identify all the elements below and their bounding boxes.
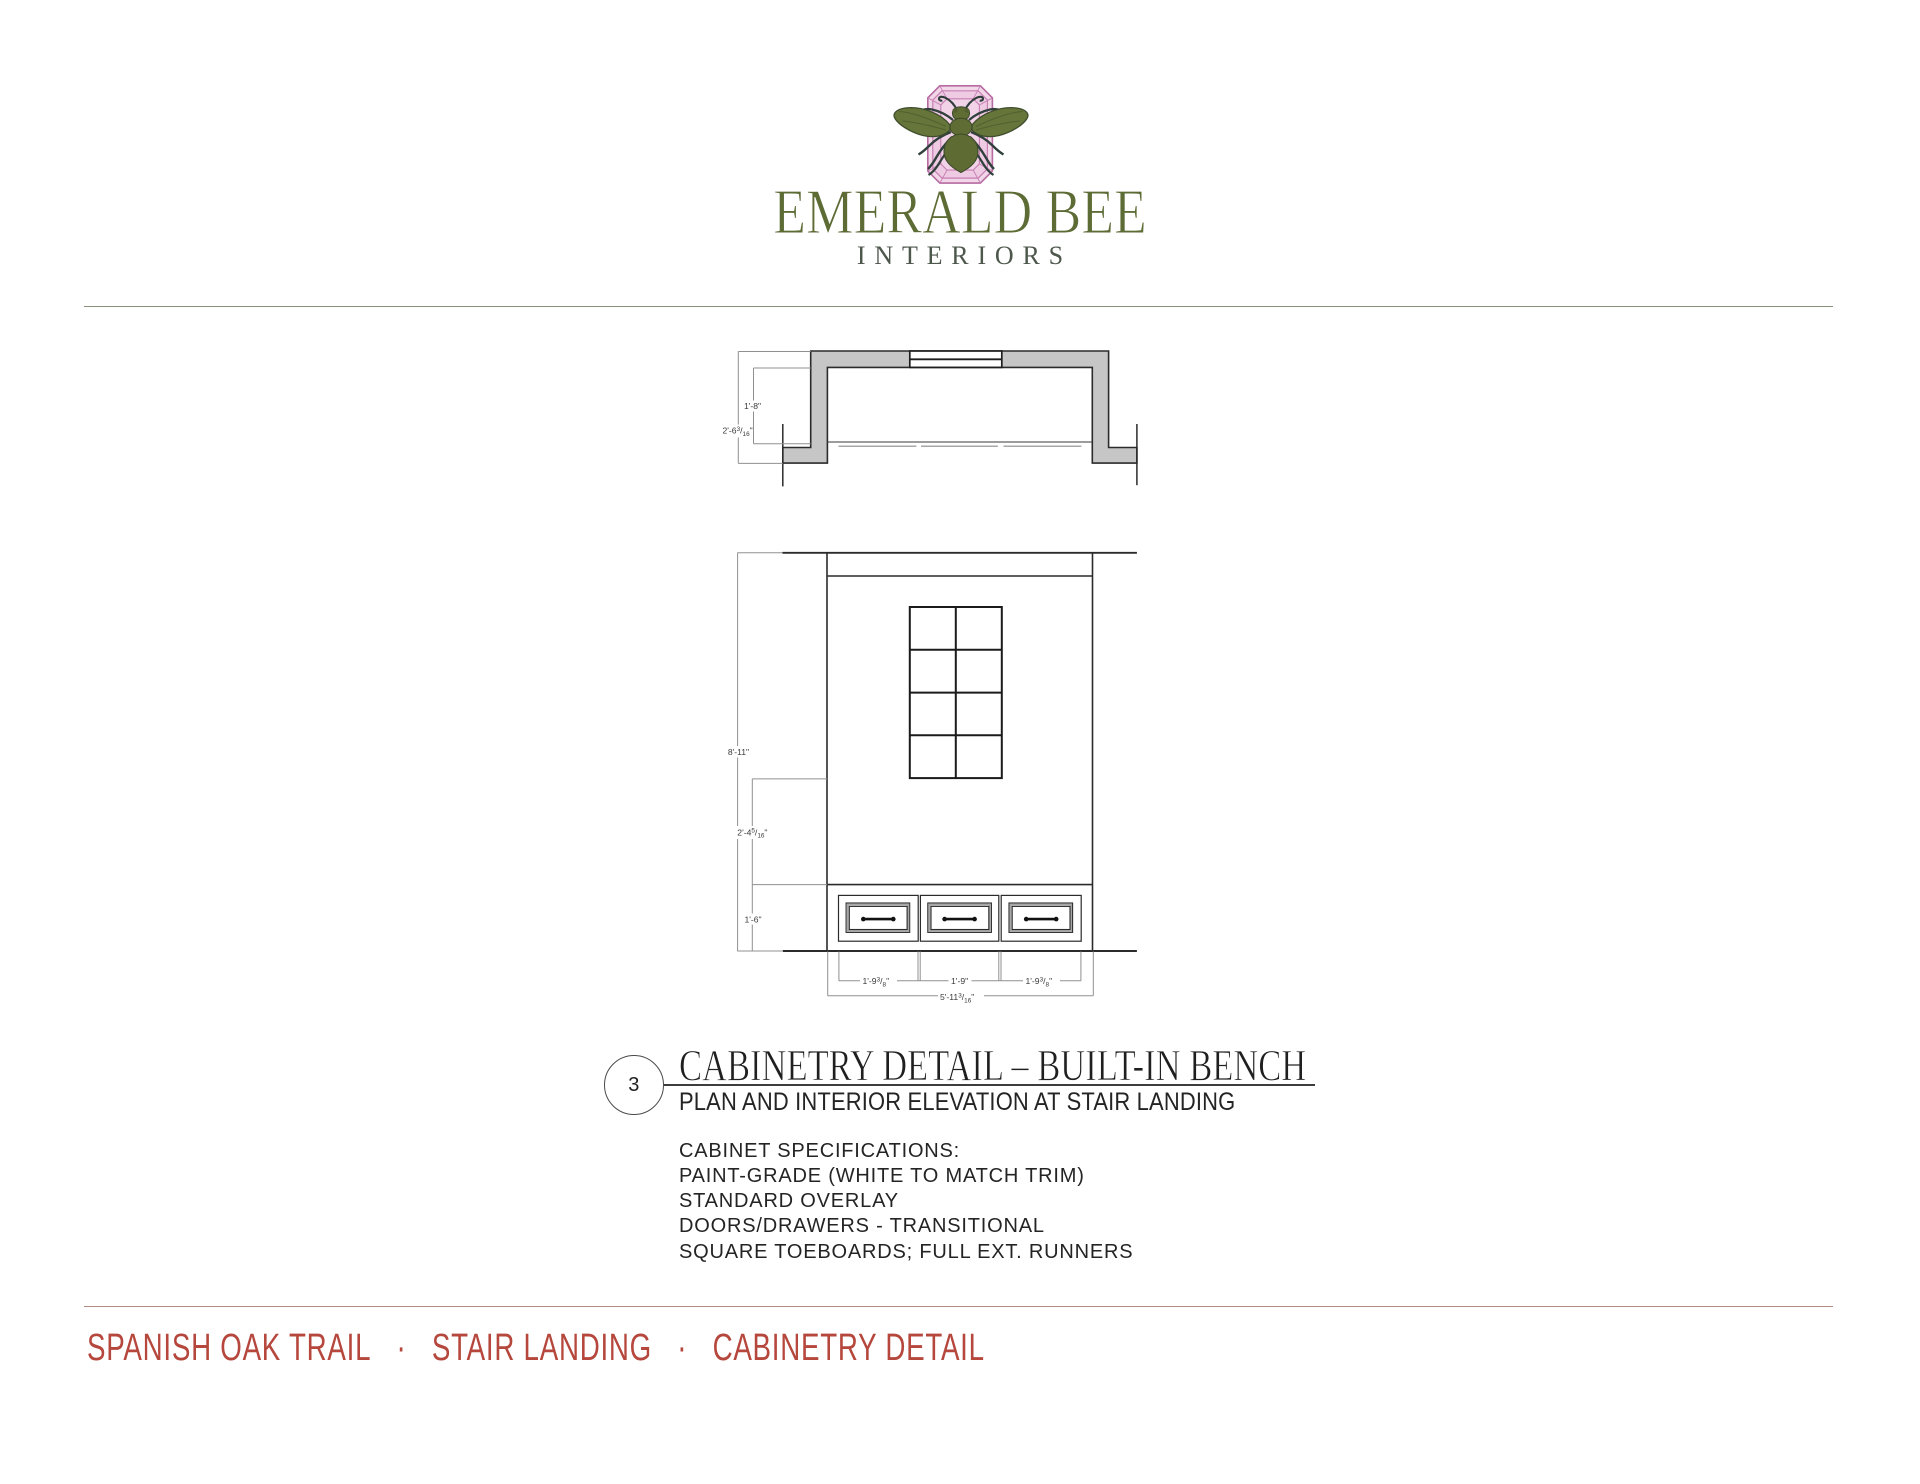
svg-text:1'-8": 1'-8": [744, 401, 761, 411]
svg-text:1'-9": 1'-9": [951, 976, 968, 986]
svg-text:1'-6": 1'-6": [744, 914, 761, 924]
svg-text:8'-11": 8'-11": [728, 747, 749, 757]
